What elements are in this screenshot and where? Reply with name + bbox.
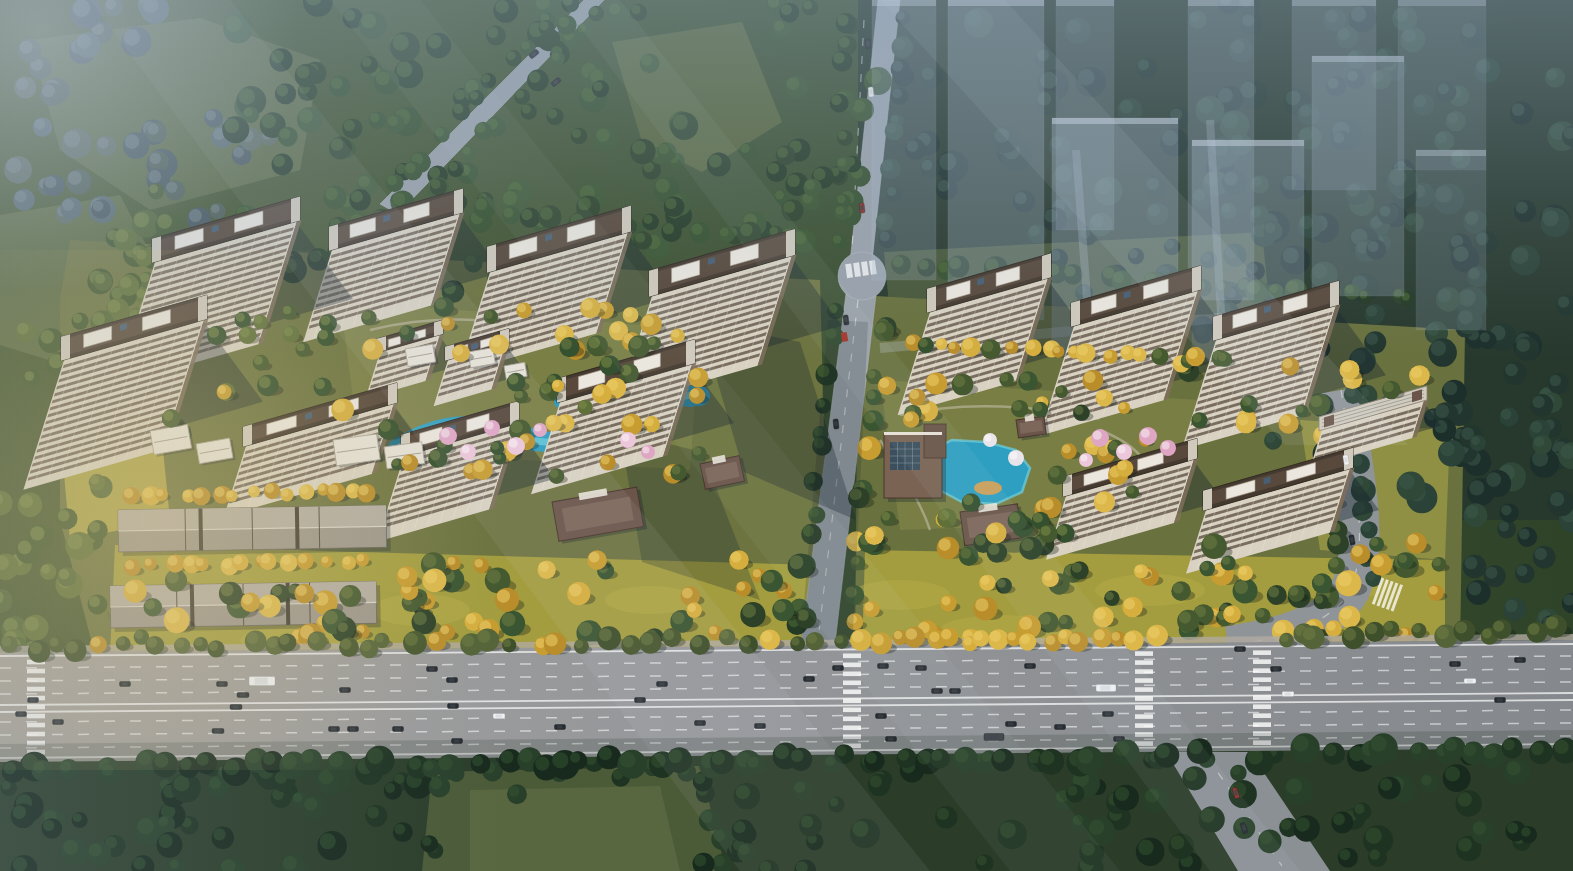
vehicle [1235,647,1246,652]
vehicle [1450,662,1461,667]
vehicle [1006,722,1017,727]
vehicle [804,677,815,682]
vehicle [1282,692,1294,697]
vehicle [886,737,897,742]
vehicle [876,714,887,719]
vehicle [833,419,839,429]
aerial-site-rendering [0,0,1573,871]
vehicle [1271,667,1282,672]
vehicle [1464,679,1476,684]
vehicle [1515,658,1526,663]
vehicle [1055,725,1066,730]
vehicle [1025,664,1036,669]
vehicle [833,666,844,671]
vehicle [1495,698,1506,703]
aerial-rendering-scene [0,0,1573,871]
